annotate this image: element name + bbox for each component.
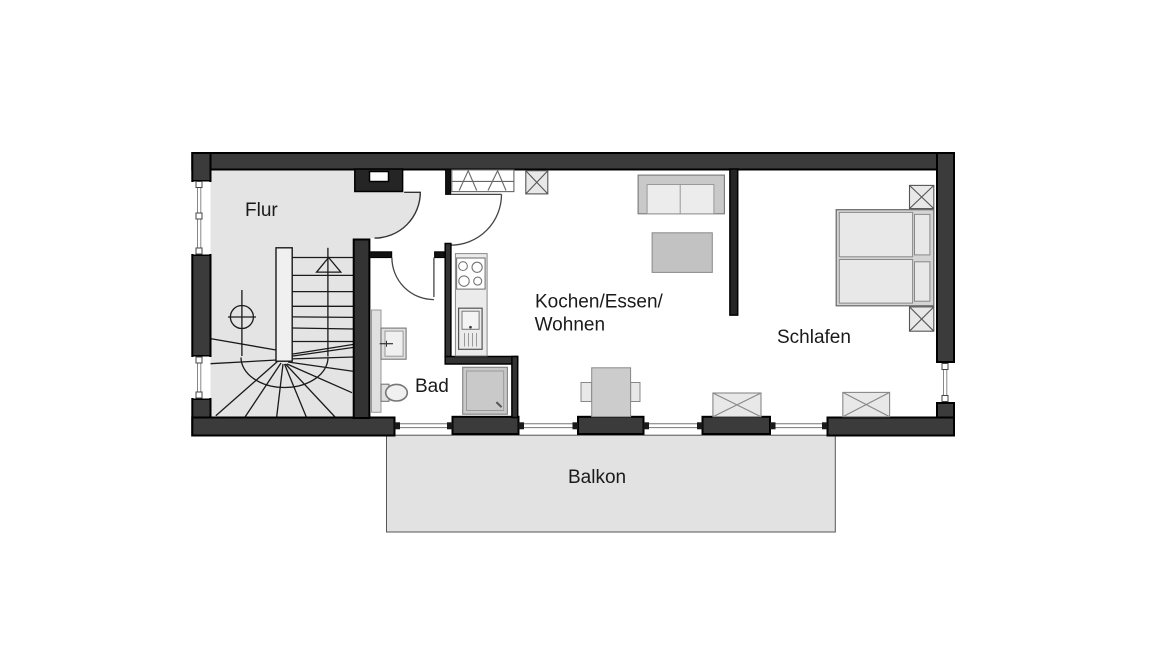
svg-text:Schlafen: Schlafen (777, 327, 851, 348)
svg-text:Kochen/Essen/: Kochen/Essen/ (535, 292, 664, 313)
svg-text:Balkon: Balkon (568, 467, 626, 488)
svg-text:Wohnen: Wohnen (535, 315, 605, 336)
svg-text:Flur: Flur (245, 200, 278, 221)
svg-text:Bad: Bad (415, 376, 449, 397)
